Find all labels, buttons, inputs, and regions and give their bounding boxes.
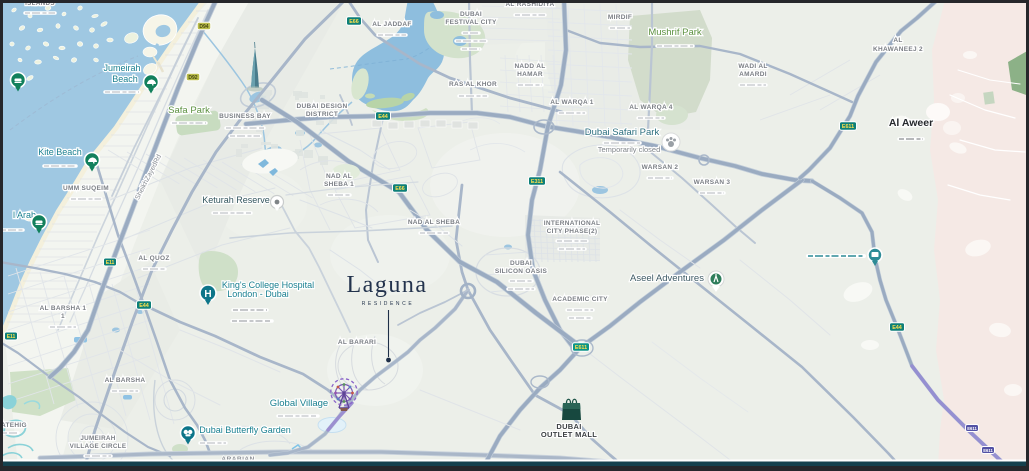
svg-text:AL: AL (893, 37, 902, 44)
svg-text:WARSAN 3: WARSAN 3 (694, 179, 731, 186)
svg-text:RESIDENCE: RESIDENCE (362, 301, 415, 307)
svg-text:AL BARSHA: AL BARSHA (105, 377, 146, 384)
svg-text:AL WARQA 4: AL WARQA 4 (629, 104, 673, 111)
svg-text:Laguna: Laguna (347, 272, 428, 298)
svg-text:NADD AL: NADD AL (514, 63, 545, 70)
svg-text:INTERNATIONAL: INTERNATIONAL (544, 220, 601, 227)
svg-text:RAS AL KHOR: RAS AL KHOR (449, 81, 497, 88)
svg-text:Keturah Reserve: Keturah Reserve (202, 195, 270, 205)
svg-text:NAD AL SHEBA: NAD AL SHEBA (408, 219, 460, 226)
svg-text:H: H (204, 289, 211, 300)
svg-text:ATEHIG: ATEHIG (1, 422, 27, 429)
svg-text:Jumeirah: Jumeirah (103, 63, 140, 73)
svg-text:ACADEMIC CITY: ACADEMIC CITY (552, 296, 608, 303)
svg-text:MIRDIF: MIRDIF (608, 14, 632, 21)
svg-text:SHEBA 1: SHEBA 1 (324, 181, 354, 188)
svg-text:VILLAGE CIRCLE: VILLAGE CIRCLE (70, 443, 127, 450)
svg-text:E66: E66 (395, 186, 405, 192)
svg-text:NAD AL: NAD AL (326, 173, 352, 180)
svg-text:E611: E611 (842, 124, 854, 130)
svg-text:E44: E44 (378, 114, 388, 120)
svg-text:WADI AL: WADI AL (738, 63, 767, 70)
svg-text:HAMAR: HAMAR (517, 71, 543, 78)
svg-text:BUSINESS BAY: BUSINESS BAY (219, 113, 271, 120)
svg-text:D92: D92 (188, 75, 197, 81)
svg-text:E66: E66 (349, 19, 359, 25)
svg-text:FESTIVAL CITY: FESTIVAL CITY (445, 19, 497, 26)
svg-text:Safa Park: Safa Park (168, 105, 210, 116)
svg-text:AL BARARI: AL BARARI (338, 339, 376, 346)
svg-text:E44: E44 (139, 303, 149, 309)
svg-text:E611: E611 (983, 448, 993, 453)
svg-text:Mushrif Park: Mushrif Park (648, 27, 702, 38)
svg-text:SILICON OASIS: SILICON OASIS (495, 268, 548, 275)
svg-text:Aseel Adventures: Aseel Adventures (630, 273, 704, 284)
svg-text:D94: D94 (199, 24, 208, 30)
svg-text:E11: E11 (7, 334, 16, 340)
svg-text:London - Dubai: London - Dubai (227, 289, 289, 299)
svg-text:E611: E611 (967, 426, 977, 431)
svg-text:OUTLET MALL: OUTLET MALL (541, 430, 597, 439)
svg-text:DUBAI: DUBAI (460, 11, 482, 18)
svg-text:DUBAI: DUBAI (510, 260, 532, 267)
svg-text:AL QUOZ: AL QUOZ (138, 255, 169, 262)
svg-text:E611: E611 (575, 345, 587, 351)
svg-text:KHAWANEEJ 2: KHAWANEEJ 2 (873, 46, 923, 53)
svg-text:UMM SUQEIM: UMM SUQEIM (63, 185, 109, 192)
svg-text:AMARDI: AMARDI (739, 71, 767, 78)
svg-text:Dubai Safari Park: Dubai Safari Park (585, 127, 660, 138)
svg-text:AL JADDAF: AL JADDAF (372, 21, 411, 28)
svg-text:Dubai Butterfly Garden: Dubai Butterfly Garden (199, 425, 291, 435)
svg-text:DUBAI DESIGN: DUBAI DESIGN (297, 103, 348, 110)
svg-text:Beach: Beach (112, 74, 138, 84)
svg-text:JUMEIRAH: JUMEIRAH (80, 435, 115, 442)
svg-text:1: 1 (61, 313, 65, 320)
svg-text:WARSAN 2: WARSAN 2 (642, 164, 679, 171)
svg-text:E44: E44 (892, 325, 902, 331)
svg-text:Kite Beach: Kite Beach (38, 147, 82, 157)
svg-text:E11: E11 (106, 260, 115, 266)
svg-text:Global Village: Global Village (270, 398, 328, 409)
svg-text:DISTRICT: DISTRICT (306, 111, 338, 118)
svg-text:Temporarily closed: Temporarily closed (598, 145, 661, 154)
svg-text:Al Aweer: Al Aweer (889, 117, 933, 129)
svg-text:AL WARQA 1: AL WARQA 1 (550, 99, 594, 106)
svg-text:E311: E311 (531, 179, 543, 185)
svg-text:CITY PHASE(2): CITY PHASE(2) (547, 228, 598, 235)
svg-text:AL BARSHA 1: AL BARSHA 1 (40, 305, 87, 312)
